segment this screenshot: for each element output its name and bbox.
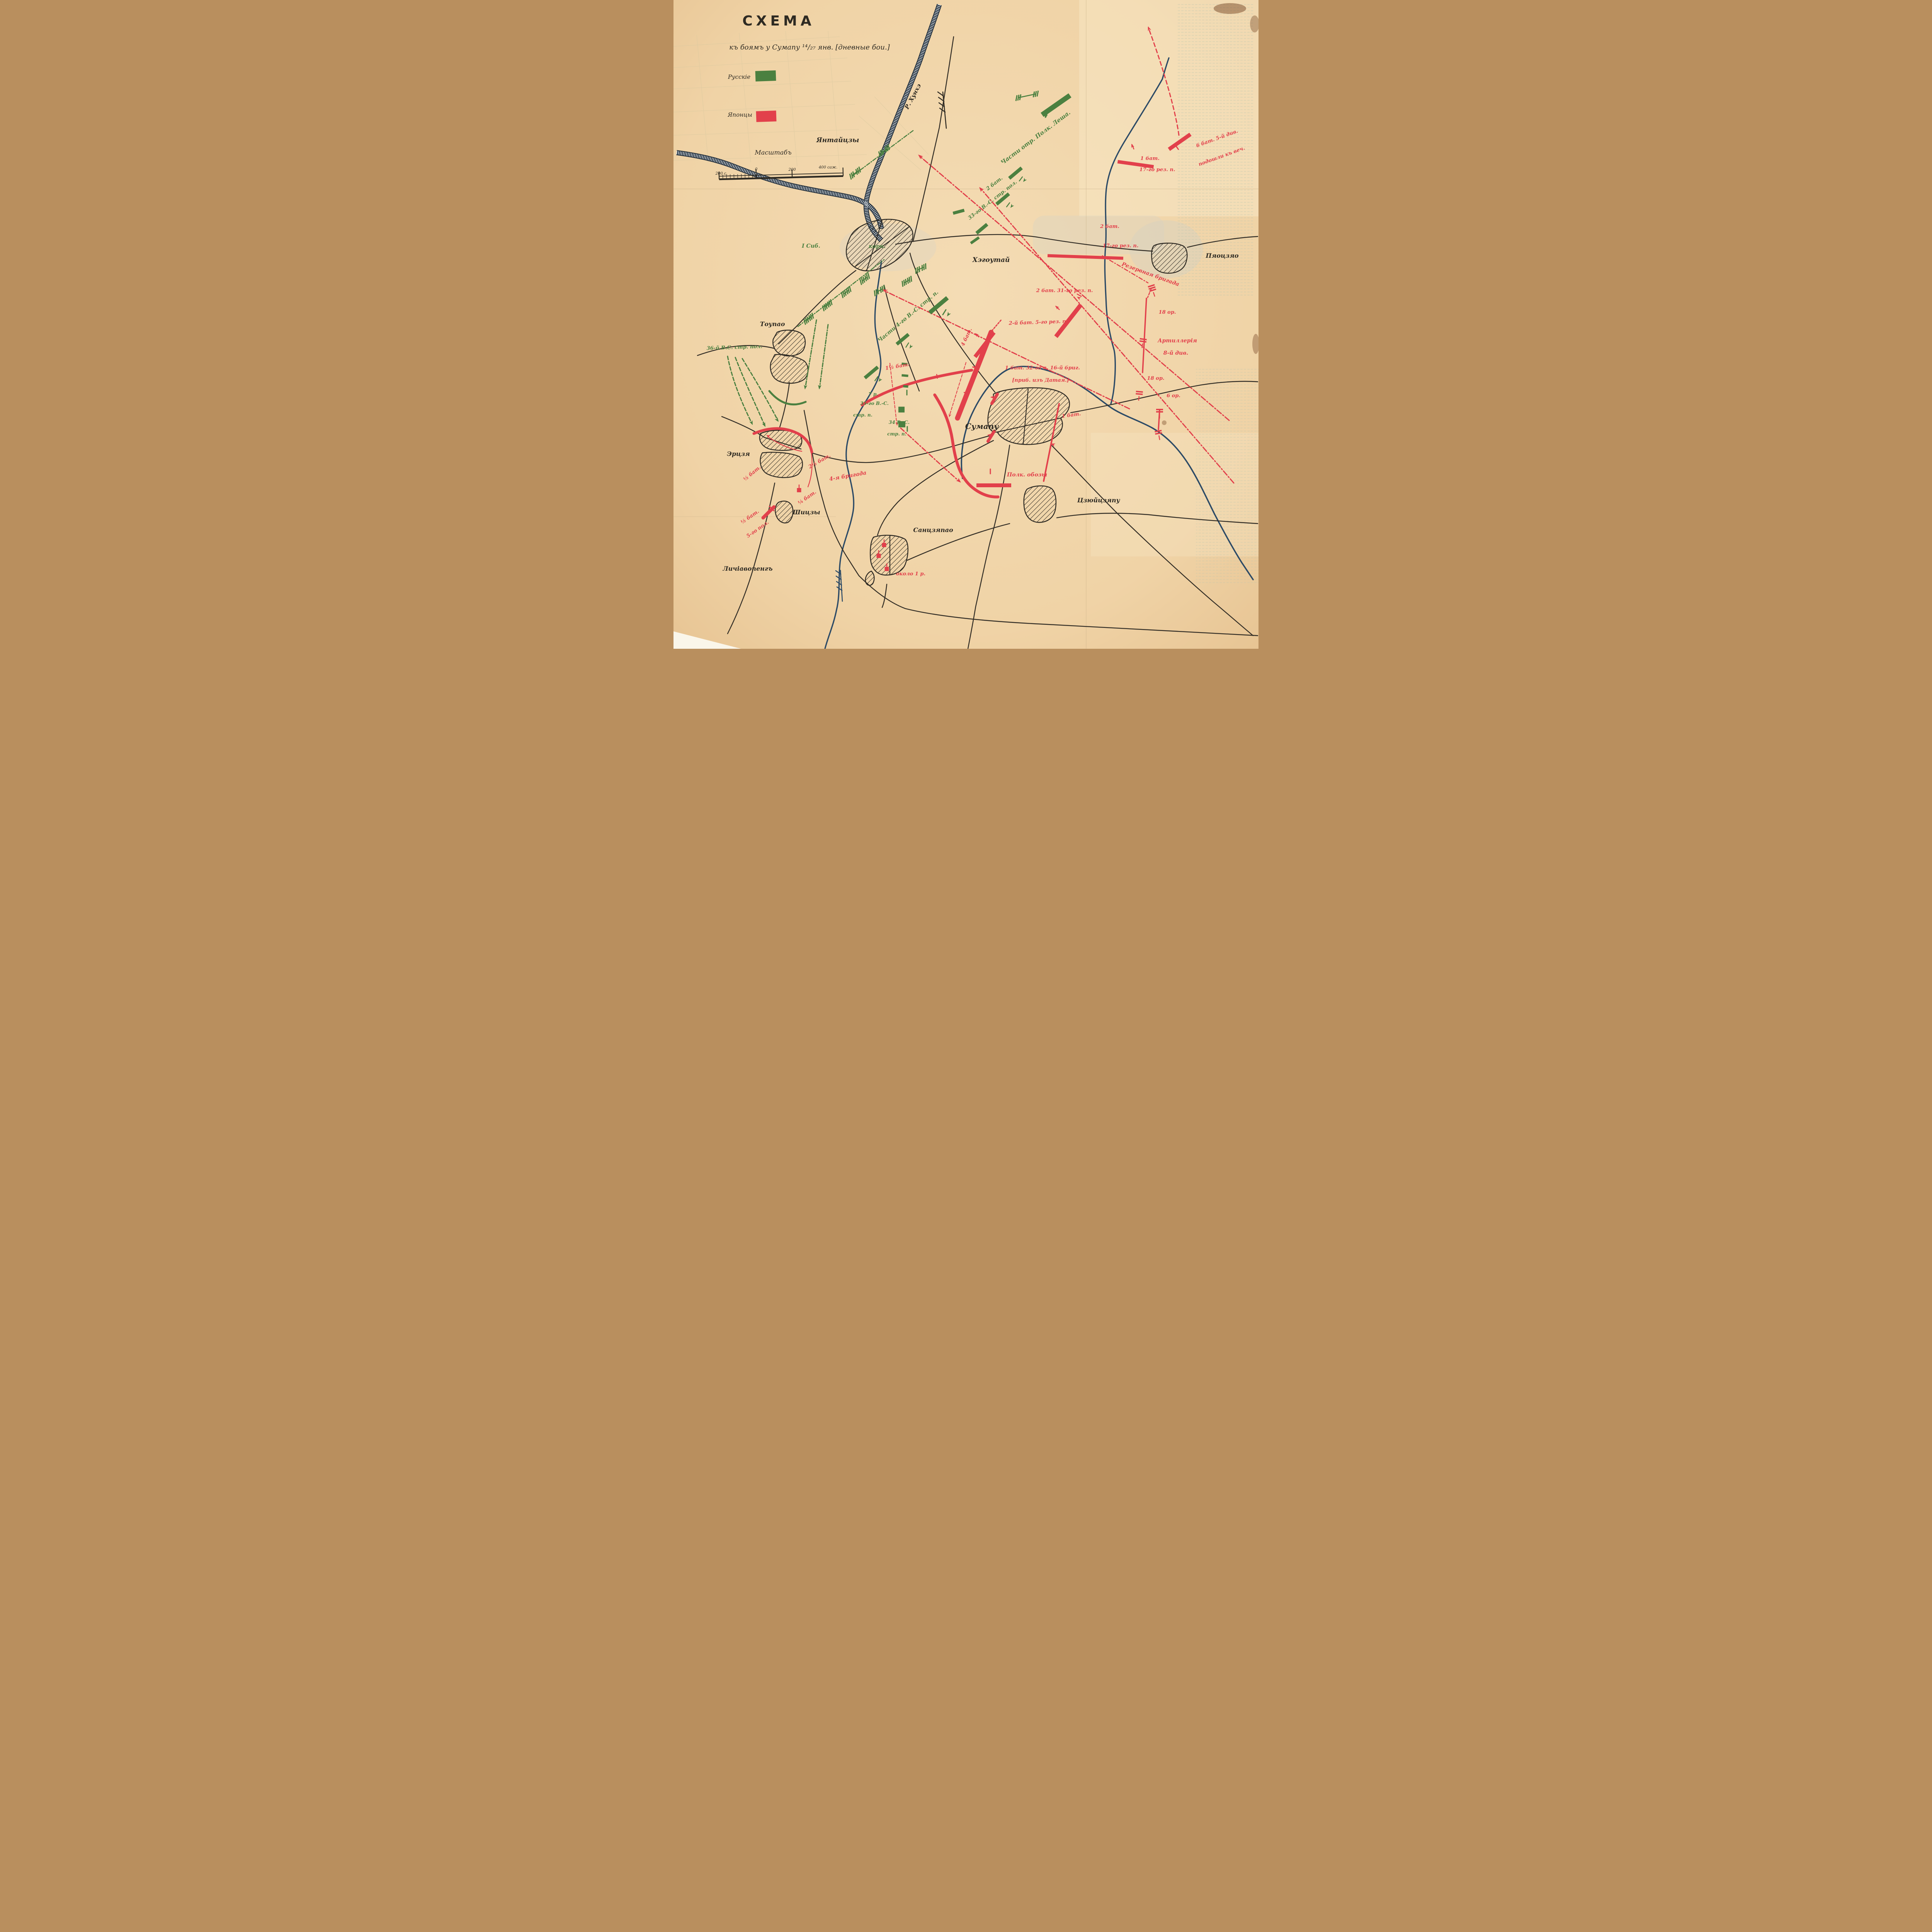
l18or-2: 18 ор. [1147, 376, 1165, 381]
l7r: 7 р. [868, 391, 878, 397]
l35-a: 35-го В.-С. [860, 401, 889, 406]
l17-1-b: 17-го рез. п. [1139, 167, 1175, 173]
village-santszyapao [870, 535, 908, 575]
town-khegoutai: Хэгоутай [972, 256, 1010, 264]
legend-russian-swatch [755, 70, 776, 82]
l6or: 6 ор. [1167, 393, 1180, 399]
town-pyaotszyao: Пяоцзяо [1206, 252, 1239, 259]
corps-1sib-b: корп. [869, 243, 886, 250]
legend-japanese: Японцы [727, 111, 752, 118]
japanese-bar-marker [976, 483, 1011, 487]
legend-japanese-swatch [756, 111, 777, 122]
town-yantaitsy: Янтайцзы [816, 136, 859, 144]
scale-200r: 200 [788, 168, 796, 172]
town-lichiavopeng: Личіавопенгъ [723, 565, 773, 572]
art8-b: 8-й див. [1163, 350, 1189, 356]
village-tszyuytszyapu [1024, 486, 1056, 522]
japanese-tick-marker [937, 374, 937, 378]
town-shitszy: Шицзы [792, 509, 820, 516]
scale-0: 0 [755, 167, 758, 172]
village-ertszya-s [760, 452, 803, 478]
lokolo: около 1 р. [896, 571, 925, 577]
l17-2-a: 2 бат. [1100, 224, 1119, 230]
l34-a: 34 В.-С. [889, 420, 910, 425]
lobozy: Полк. обозы [1007, 472, 1047, 478]
l18or-1: 18 ор. [1159, 310, 1176, 315]
l34-b: стр. п. [887, 431, 906, 437]
town-ertszya: Эрцзя [727, 450, 750, 457]
l32-b: [приб. изъ Датая.] [1012, 378, 1069, 383]
scale-200l: 200 с. [715, 172, 727, 176]
l17-1-a: 1 бат. [1140, 156, 1160, 162]
russian-bar-marker [898, 407, 905, 413]
title: СХЕМА [742, 13, 815, 29]
scale-400: 400 саж. [818, 165, 837, 170]
russian-bar-marker [903, 385, 908, 388]
art8-a: Артиллерія [1157, 338, 1197, 344]
town-santszyapao: Санцзяпао [913, 526, 953, 534]
town-toupao: Тоупао [760, 320, 785, 328]
l32-a: 1 бат. 32-го п. 16-й бриг. [1005, 365, 1080, 371]
l35-b: стр. п. [853, 412, 872, 418]
subtitle: къ боямъ у Сумапу ¹⁴/₂₇ янв. [дневные бо… [729, 43, 890, 51]
town-sumapu: Сумапу [965, 422, 999, 431]
l17-2-b: 17-го рез. п. [1103, 243, 1139, 249]
legend-russians: Русскіе [728, 73, 750, 80]
village-pyaotszyao [1151, 243, 1187, 273]
scale-title: Масштабъ [754, 149, 791, 156]
corps-1sib-a: I Сиб. [801, 243, 820, 249]
l31: 2 бат. 31-го рез. п. [1036, 288, 1093, 294]
map-canvas: СХЕМАкъ боямъ у Сумапу ¹⁴/₂₇ янв. [дневн… [673, 0, 1259, 649]
town-tszyuytszyapu: Цзюйцзяпу [1077, 497, 1121, 504]
village-toupao-n [773, 330, 805, 356]
